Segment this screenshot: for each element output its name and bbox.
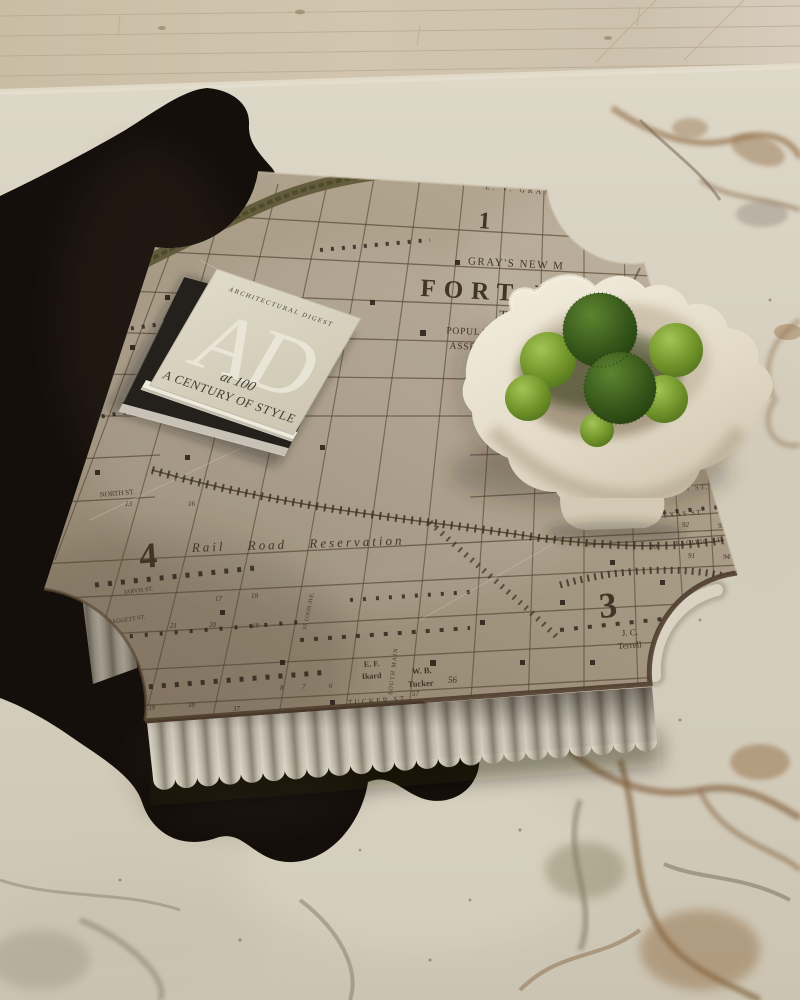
- svg-text:18: 18: [251, 592, 259, 600]
- svg-text:91: 91: [688, 552, 695, 560]
- svg-text:17: 17: [215, 595, 223, 603]
- interior-photo: GRAY'S NEW M FORT W TEX POPULATION IN AS…: [0, 0, 800, 1000]
- svg-text:6: 6: [329, 682, 333, 690]
- owner-ikard-line2: Ikard: [362, 671, 383, 681]
- svg-text:20: 20: [209, 621, 217, 629]
- svg-text:8: 8: [280, 684, 284, 692]
- moss-ball-light-3: [649, 323, 703, 377]
- moss-ball-light-2: [505, 375, 551, 421]
- svg-text:38: 38: [187, 701, 196, 709]
- svg-text:21: 21: [170, 622, 177, 630]
- owner-tucker-line1: W. B.: [412, 665, 432, 676]
- svg-text:39: 39: [147, 704, 156, 712]
- svg-text:57: 57: [412, 690, 420, 698]
- svg-text:94: 94: [723, 553, 731, 561]
- map-section-4: 4: [138, 535, 159, 576]
- svg-text:92: 92: [682, 521, 690, 529]
- bowl-pedestal-shadow: [545, 521, 685, 543]
- svg-text:7: 7: [302, 683, 306, 691]
- map-section-3: 3: [597, 585, 618, 626]
- owner-tucker-line2: Tucker: [408, 678, 434, 689]
- svg-text:90: 90: [650, 543, 658, 551]
- owner-terrell-line2: Terrell: [617, 639, 642, 651]
- map-section-1: 1: [478, 208, 492, 235]
- svg-text:56: 56: [448, 675, 458, 685]
- svg-text:16: 16: [188, 500, 196, 508]
- owner-ikard-line1: E. F.: [364, 659, 380, 669]
- svg-text:19: 19: [252, 622, 260, 630]
- owner-terrell-line1: J. C.: [621, 627, 638, 638]
